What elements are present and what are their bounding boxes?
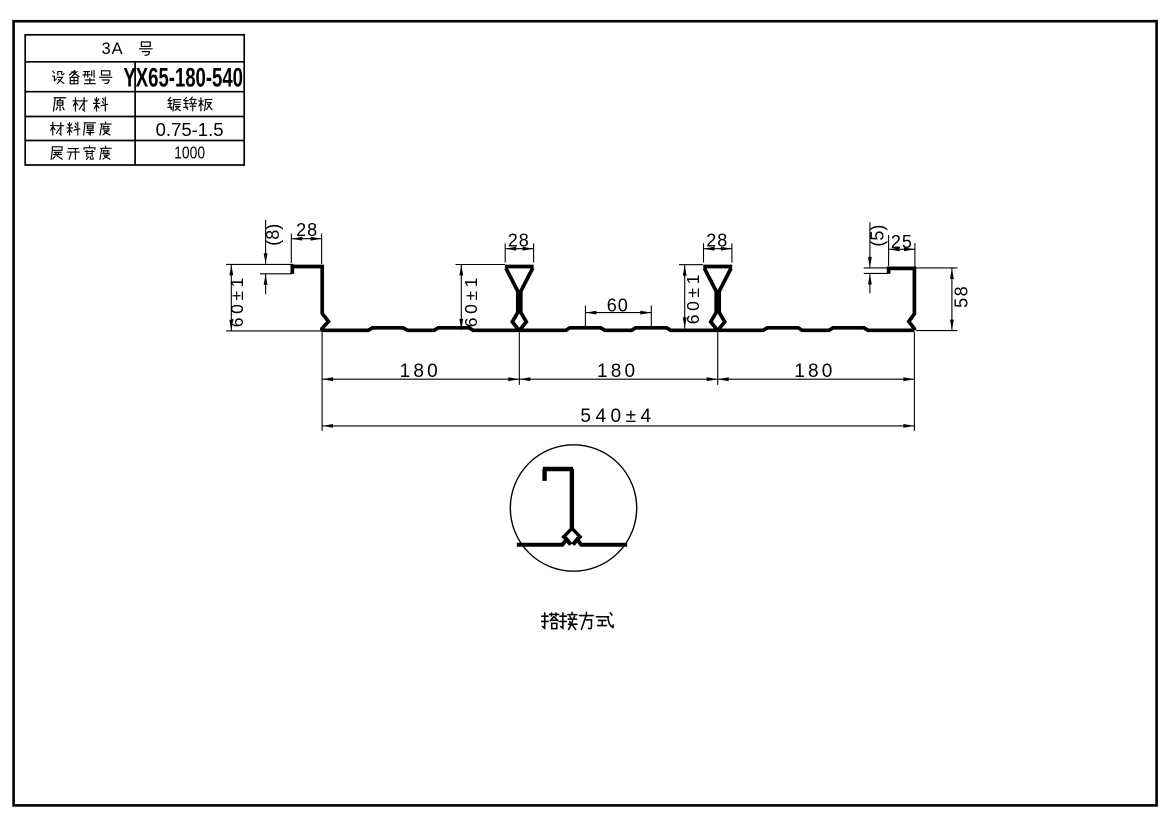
svg-text:0.75-1.5: 0.75-1.5: [156, 119, 224, 140]
svg-text:58: 58: [951, 285, 971, 308]
svg-text:(8): (8): [263, 224, 283, 246]
svg-text:60±1: 60±1: [461, 274, 481, 327]
svg-text:28: 28: [296, 220, 318, 240]
svg-text:28: 28: [706, 231, 728, 251]
svg-text:(5): (5): [868, 225, 888, 247]
svg-text:60: 60: [607, 296, 629, 316]
svg-text:28: 28: [508, 231, 530, 251]
svg-text:3A: 3A: [102, 40, 124, 58]
svg-text:180: 180: [794, 361, 835, 382]
svg-text:YX65-180-540: YX65-180-540: [123, 62, 243, 92]
svg-text:180: 180: [400, 361, 441, 382]
svg-text:60±1: 60±1: [683, 271, 703, 324]
svg-text:60±1: 60±1: [227, 274, 247, 327]
svg-text:25: 25: [891, 232, 913, 252]
svg-text:540±4: 540±4: [580, 406, 655, 427]
svg-text:180: 180: [597, 361, 638, 382]
svg-text:1000: 1000: [174, 144, 205, 163]
